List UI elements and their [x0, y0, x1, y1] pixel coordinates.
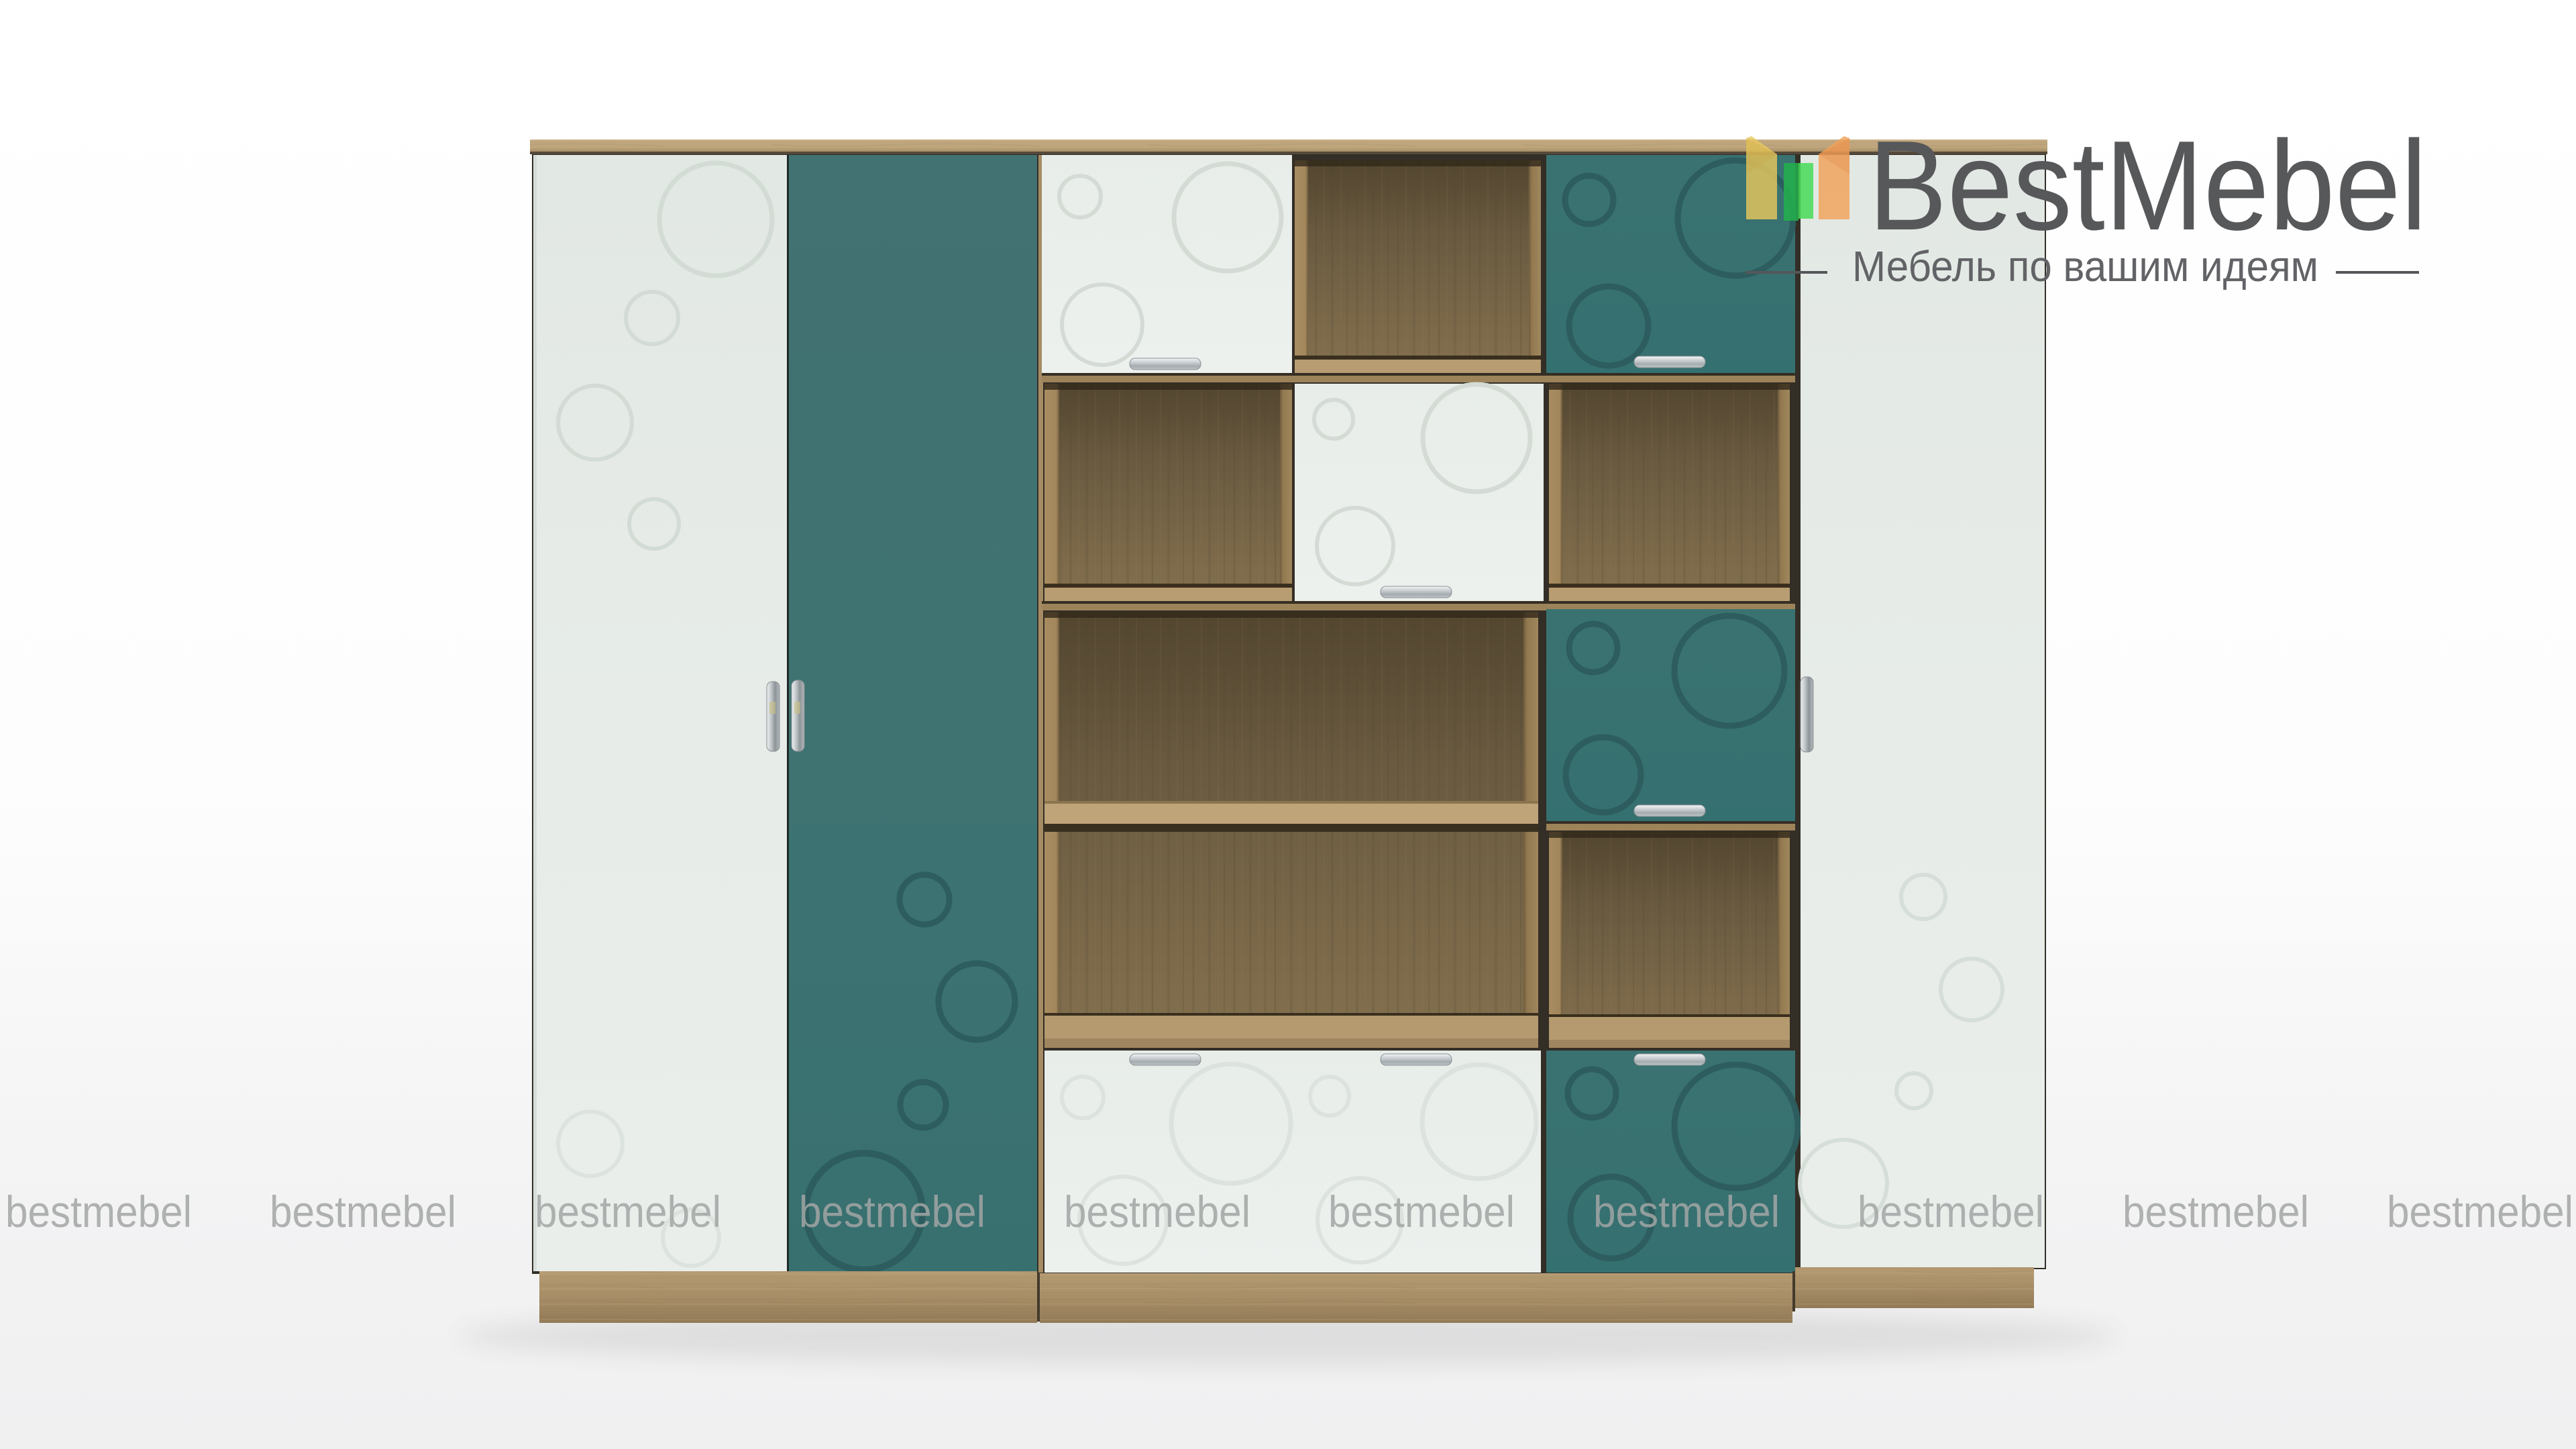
svg-text:bestmebel: bestmebel [799, 1187, 985, 1236]
svg-text:bestmebel: bestmebel [1328, 1187, 1515, 1236]
svg-text:Мебель по вашим идеям: Мебель по вашим идеям [1852, 242, 2318, 290]
svg-text:bestmebel: bestmebel [2123, 1187, 2309, 1236]
svg-text:bestmebel: bestmebel [5, 1187, 192, 1236]
svg-text:bestmebel: bestmebel [1593, 1187, 1780, 1236]
svg-text:bestmebel: bestmebel [1064, 1187, 1250, 1236]
svg-text:bestmebel: bestmebel [535, 1187, 721, 1236]
svg-text:bestmebel: bestmebel [270, 1187, 456, 1236]
svg-text:bestmebel: bestmebel [1858, 1187, 2044, 1236]
svg-text:BestMebel: BestMebel [1868, 115, 2427, 257]
svg-text:bestmebel: bestmebel [2387, 1187, 2573, 1236]
